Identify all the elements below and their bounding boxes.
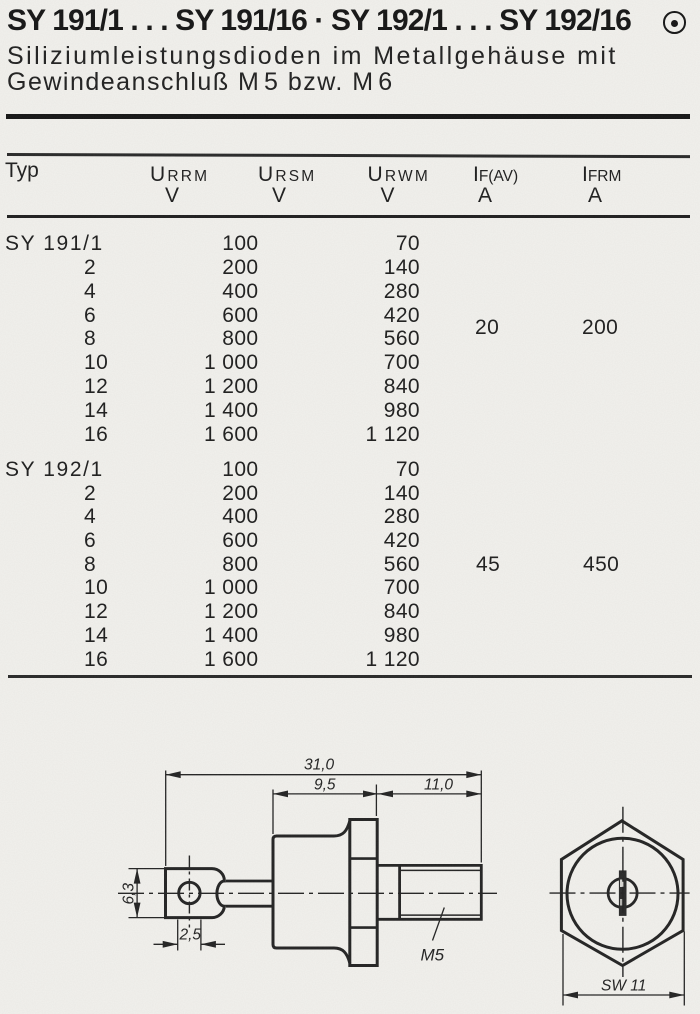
svg-text:SW 11: SW 11 xyxy=(601,978,646,995)
svg-text:11,0: 11,0 xyxy=(424,777,453,794)
svg-text:M5: M5 xyxy=(421,946,445,965)
svg-text:31,0: 31,0 xyxy=(304,757,335,774)
svg-text:9,5: 9,5 xyxy=(314,777,336,794)
svg-text:6,3: 6,3 xyxy=(121,883,138,905)
svg-text:2,5: 2,5 xyxy=(179,927,202,944)
